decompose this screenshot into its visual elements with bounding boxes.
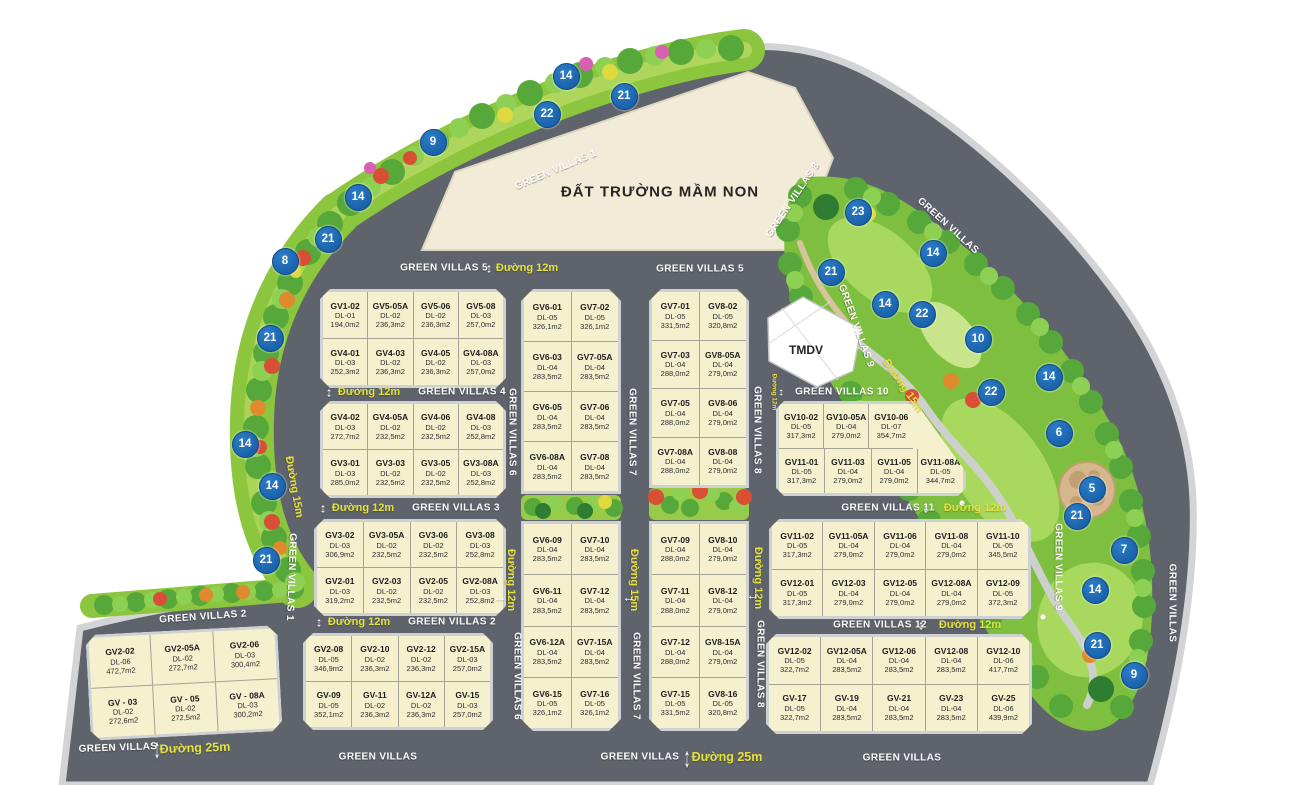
lot-GV12-01[interactable]: GV12-01DL-05317,3m2 (772, 570, 823, 617)
lot-text: GV7-15A (577, 637, 612, 647)
lot-GV3-05A[interactable]: GV3-05ADL-02232,5m2 (364, 522, 411, 567)
lot-GV7-12[interactable]: GV7-12DL-04283,5m2 (572, 575, 619, 625)
tmdv-label[interactable]: TMDV (789, 343, 823, 357)
lot-text: GV-17 (783, 693, 807, 703)
lot-text: DL-03 (457, 701, 477, 710)
lot-text: 232,5m2 (419, 550, 448, 559)
lot-text: DL-04 (537, 545, 557, 554)
lot-row: GV6-09DL-04283,5m2GV7-10DL-04283,5m2 (524, 524, 618, 575)
lot-text: DL-02 (423, 541, 443, 550)
lot-GV11-02[interactable]: GV11-02DL-05317,3m2 (772, 522, 823, 569)
lot-text: 257,0m2 (453, 664, 482, 673)
amenity-marker-14[interactable]: 14 (232, 431, 259, 458)
lot-text: 300,2m2 (233, 709, 263, 720)
lot-GV11-08[interactable]: GV11-08DL-04279,0m2 (926, 522, 977, 569)
lot-text: 272,5m2 (171, 713, 201, 724)
lot-text: 236,3m2 (360, 664, 389, 673)
lot-text: GV2-15A (450, 644, 485, 654)
lot-row: GV7-11DL-04288,0m2GV8-12DL-04279,0m2 (652, 575, 746, 626)
lot-GV10-02[interactable]: GV10-02DL-05317,3m2 (779, 404, 824, 448)
road-width-arrow-icon: ↕ (486, 261, 493, 276)
lot-block-Ftop: GV6-01DL-05326,1m2GV7-02DL-05326,1m2GV6-… (521, 289, 621, 494)
lot-GV-08A[interactable]: GV - 08ADL-03300,2m2 (216, 679, 280, 732)
lot-text: GV11-08A (921, 457, 961, 467)
lot-text: GV-11 (363, 690, 387, 700)
lot-text: DL-04 (941, 541, 961, 550)
lot-text: 279,0m2 (834, 598, 863, 607)
lot-GV11-01[interactable]: GV11-01DL-05317,3m2 (779, 449, 825, 493)
lot-row: GV6-15DL-05326,1m2GV7-16DL-05326,1m2 (524, 678, 618, 728)
lot-block-Fbot: GV6-09DL-04283,5m2GV7-10DL-04283,5m2GV6-… (521, 521, 621, 731)
lot-GV-03[interactable]: GV - 03DL-02272,6m2 (91, 685, 156, 738)
lot-text: 257,0m2 (453, 710, 482, 719)
lot-row: GV11-02DL-05317,3m2GV11-05ADL-04279,0m2G… (772, 522, 1028, 570)
lot-GV11-05[interactable]: GV11-05DL-04279,0m2 (872, 449, 918, 493)
road-name-label: GREEN VILLAS 9 (1053, 523, 1064, 611)
lot-row: GV12-02DL-05322,7m2GV12-05ADL-04283,5m2G… (769, 637, 1029, 685)
lot-GV3-03[interactable]: GV3-03DL-02232,5m2 (368, 450, 413, 495)
lot-text: GV5-05A (373, 301, 408, 311)
amenity-marker-21[interactable]: 21 (315, 226, 342, 253)
lot-text: GV11-06 (883, 531, 917, 541)
lot-GV8-05A[interactable]: GV8-05ADL-04279,0m2 (700, 341, 747, 389)
lot-GV-09[interactable]: GV-09DL-05352,1m2 (306, 682, 352, 727)
lot-GV6-15[interactable]: GV6-15DL-05326,1m2 (524, 678, 572, 728)
lot-text: GV12-03 (832, 578, 866, 588)
lot-text: DL-04 (665, 360, 685, 369)
lot-GV7-11[interactable]: GV7-11DL-04288,0m2 (652, 575, 700, 625)
lot-GV6-01[interactable]: GV6-01DL-05326,1m2 (524, 292, 572, 341)
lot-text: DL-03 (330, 541, 350, 550)
lot-text: GV8-15A (705, 637, 740, 647)
lot-GV12-10[interactable]: GV12-10DL-06417,7m2 (978, 637, 1029, 684)
lot-text: DL-02 (380, 311, 400, 320)
lot-text: GV2-12 (406, 644, 435, 654)
lot-GV6-03[interactable]: GV6-03DL-04283,5m2 (524, 342, 572, 391)
lot-text: GV3-05 (421, 458, 450, 468)
lot-GV12-05[interactable]: GV12-05DL-04279,0m2 (875, 570, 926, 617)
lot-GV11-10[interactable]: GV11-10DL-05345,5m2 (978, 522, 1028, 569)
road-width-arrow-icon: ↕ (316, 615, 323, 630)
lot-GV7-15[interactable]: GV7-15DL-05331,5m2 (652, 678, 700, 728)
road-width-label: Đường 12m (505, 549, 517, 611)
lot-GV11-03[interactable]: GV11-03DL-04279,0m2 (825, 449, 871, 493)
road-width-label: Đường 12m (332, 502, 394, 514)
lot-text: 320,8m2 (708, 708, 737, 717)
lot-GV2-05[interactable]: GV2-05DL-02232,5m2 (411, 568, 458, 613)
lot-text: GV7-09 (661, 535, 690, 545)
lot-text: 279,0m2 (708, 369, 737, 378)
lot-text: DL-05 (787, 589, 807, 598)
lot-text: 354,7m2 (877, 431, 906, 440)
lot-text: 326,1m2 (580, 322, 609, 331)
lot-GV2-15A[interactable]: GV2-15ADL-03257,0m2 (445, 636, 490, 681)
lot-GV7-02[interactable]: GV7-02DL-05326,1m2 (572, 292, 619, 341)
lot-text: DL-04 (941, 704, 961, 713)
lot-text: DL-04 (836, 422, 856, 431)
lot-text: DL-02 (425, 423, 445, 432)
lot-GV7-08[interactable]: GV7-08DL-04283,5m2 (572, 442, 619, 491)
lot-row: GV7-09DL-04288,0m2GV8-10DL-04279,0m2 (652, 524, 746, 575)
lot-text: GV12-05 (883, 578, 917, 588)
lot-GV-05[interactable]: GV - 05DL-02272,5m2 (153, 682, 218, 735)
lot-GV7-05[interactable]: GV7-05DL-04288,0m2 (652, 389, 700, 437)
road-width-arrow-icon: ↕ (778, 386, 785, 398)
lot-text: GV-21 (887, 693, 911, 703)
lot-text: GV12-10 (986, 646, 1020, 656)
lot-GV7-09[interactable]: GV7-09DL-04288,0m2 (652, 524, 700, 574)
lot-GV7-08A[interactable]: GV7-08ADL-04288,0m2 (652, 438, 700, 486)
amenity-marker-10[interactable]: 10 (965, 326, 992, 353)
lot-GV12-05A[interactable]: GV12-05ADL-04283,5m2 (821, 637, 873, 684)
amenity-marker-14[interactable]: 14 (920, 240, 947, 267)
lot-text: 288,0m2 (661, 657, 690, 666)
lot-text: DL-04 (837, 704, 857, 713)
road-width-label: Đường 25m (159, 740, 230, 756)
road-name-label: GREEN VILLAS (1167, 564, 1178, 643)
lot-text: 283,5m2 (580, 554, 609, 563)
road-width-label: Đường 12m (338, 386, 400, 398)
lot-text: 288,0m2 (661, 606, 690, 615)
lot-text: 232,5m2 (421, 432, 450, 441)
lot-GV4-08[interactable]: GV4-08DL-03252,8m2 (459, 404, 503, 449)
amenity-marker-22[interactable]: 22 (978, 379, 1005, 406)
lot-text: DL-04 (585, 363, 605, 372)
lot-text: DL-05 (993, 541, 1013, 550)
lot-GV1-02[interactable]: GV1-02DL-01194,0m2 (323, 292, 368, 338)
amenity-marker-14[interactable]: 14 (345, 184, 372, 211)
lot-text: 236,3m2 (376, 367, 405, 376)
lot-text: GV6-01 (533, 302, 562, 312)
lot-GV11-05A[interactable]: GV11-05ADL-04279,0m2 (823, 522, 874, 569)
lot-GV-25[interactable]: GV-25DL-06439,9m2 (978, 685, 1029, 732)
road-width-arrow-icon: ↕ (320, 501, 327, 516)
lot-GV8-08[interactable]: GV8-08DL-04279,0m2 (700, 438, 747, 486)
lot-text: GV3-03 (376, 458, 405, 468)
lot-text: GV10-05A (826, 412, 866, 422)
amenity-marker-14[interactable]: 14 (1082, 577, 1109, 604)
lot-text: DL-06 (993, 656, 1013, 665)
lot-GV4-03[interactable]: GV4-03DL-02236,3m2 (368, 339, 413, 385)
lot-text: DL-04 (585, 463, 605, 472)
lot-text: GV7-12 (661, 637, 690, 647)
amenity-marker-21[interactable]: 21 (1064, 503, 1091, 530)
lot-GV5-05A[interactable]: GV5-05ADL-02236,3m2 (368, 292, 413, 338)
lot-GV2-08[interactable]: GV2-08DL-05346,9m2 (306, 636, 352, 681)
lot-GV12-02[interactable]: GV12-02DL-05322,7m2 (769, 637, 821, 684)
lot-text: 283,5m2 (884, 713, 913, 722)
amenity-marker-21[interactable]: 21 (611, 83, 638, 110)
lot-text: GV7-08A (658, 447, 693, 457)
lot-text: GV11-01 (785, 457, 819, 467)
amenity-marker-7[interactable]: 7 (1111, 537, 1138, 564)
lot-text: DL-04 (884, 467, 904, 476)
lot-GV2-02[interactable]: GV2-02DL-06472,7m2 (89, 635, 154, 688)
lot-GV4-01[interactable]: GV4-01DL-03252,3m2 (323, 339, 368, 385)
lot-GV4-02[interactable]: GV4-02DL-03272,7m2 (323, 404, 368, 449)
lot-text: DL-05 (585, 313, 605, 322)
lot-row: GV4-01DL-03252,3m2GV4-03DL-02236,3m2GV4-… (323, 339, 503, 385)
lot-text: DL-04 (713, 596, 733, 605)
lot-text: 320,8m2 (708, 321, 737, 330)
lot-row: GV1-02DL-01194,0m2GV5-05ADL-02236,3m2GV5… (323, 292, 503, 339)
lot-text: DL-05 (791, 467, 811, 476)
lot-text: 288,0m2 (661, 418, 690, 427)
lot-text: 417,7m2 (989, 665, 1018, 674)
lot-GV12-06[interactable]: GV12-06DL-04283,5m2 (873, 637, 925, 684)
lot-GV7-10[interactable]: GV7-10DL-04283,5m2 (572, 524, 619, 574)
lot-row: GV7-15DL-05331,5m2GV8-16DL-05320,8m2 (652, 678, 746, 728)
lot-GV3-01[interactable]: GV3-01DL-03285,0m2 (323, 450, 368, 495)
lot-GV11-06[interactable]: GV11-06DL-04279,0m2 (875, 522, 926, 569)
lot-GV-17[interactable]: GV-17DL-05322,7m2 (769, 685, 821, 732)
lot-GV6-05[interactable]: GV6-05DL-04283,5m2 (524, 392, 572, 441)
lot-text: DL-04 (537, 463, 557, 472)
lot-text: DL-07 (881, 422, 901, 431)
lot-text: GV3-08 (465, 530, 494, 540)
lot-GV7-15A[interactable]: GV7-15ADL-04283,5m2 (572, 627, 619, 677)
lot-GV8-02[interactable]: GV8-02DL-05320,8m2 (700, 292, 747, 340)
lot-GV12-09[interactable]: GV12-09DL-05372,3m2 (978, 570, 1028, 617)
lot-text: DL-04 (941, 656, 961, 665)
road-width-arrow-icon: ↕ (326, 385, 333, 400)
lot-GV7-12[interactable]: GV7-12DL-04288,0m2 (652, 627, 700, 677)
lot-GV8-16[interactable]: GV8-16DL-05320,8m2 (700, 678, 747, 728)
lot-text: GV6-08A (530, 452, 565, 462)
lot-GV5-06[interactable]: GV5-06DL-02236,3m2 (414, 292, 459, 338)
lot-GV2-01[interactable]: GV2-01DL-03319,2m2 (317, 568, 364, 613)
lot-text: GV4-03 (376, 348, 405, 358)
amenity-marker-9[interactable]: 9 (420, 129, 447, 156)
lot-GV8-15A[interactable]: GV8-15ADL-04279,0m2 (700, 627, 747, 677)
lot-row: GV3-02DL-03306,9m2GV3-05ADL-02232,5m2GV3… (317, 522, 503, 568)
lot-GV3-02[interactable]: GV3-02DL-03306,9m2 (317, 522, 364, 567)
lot-text: DL-04 (890, 541, 910, 550)
lot-text: GV12-01 (780, 578, 814, 588)
lot-GV12-08A[interactable]: GV12-08ADL-04279,0m2 (926, 570, 977, 617)
lot-GV3-08A[interactable]: GV3-08ADL-03252,8m2 (459, 450, 503, 495)
lot-GV-19[interactable]: GV-19DL-04283,5m2 (821, 685, 873, 732)
lot-text: DL-04 (585, 413, 605, 422)
lot-GV3-06[interactable]: GV3-06DL-02232,5m2 (411, 522, 458, 567)
lot-GV5-08[interactable]: GV5-08DL-03257,0m2 (459, 292, 503, 338)
lot-text: GV-15 (455, 690, 479, 700)
lot-text: 236,3m2 (360, 710, 389, 719)
lot-text: 288,0m2 (661, 466, 690, 475)
amenity-marker-21[interactable]: 21 (257, 325, 284, 352)
lot-text: GV7-06 (580, 402, 609, 412)
lot-GV-11[interactable]: GV-11DL-02236,3m2 (352, 682, 398, 727)
lot-text: GV4-01 (330, 348, 359, 358)
lot-text: 232,5m2 (372, 550, 401, 559)
lot-row: GV7-01DL-05331,5m2GV8-02DL-05320,8m2 (652, 292, 746, 341)
lot-text: 236,3m2 (421, 320, 450, 329)
amenity-marker-22[interactable]: 22 (534, 101, 561, 128)
lot-text: 283,5m2 (580, 606, 609, 615)
amenity-marker-21[interactable]: 21 (253, 547, 280, 574)
lot-text: 300,4m2 (231, 659, 261, 670)
lot-text: DL-01 (335, 311, 355, 320)
lot-text: 283,5m2 (832, 713, 861, 722)
lot-GV7-16[interactable]: GV7-16DL-05326,1m2 (572, 678, 619, 728)
lot-text: DL-05 (784, 656, 804, 665)
lot-text: GV7-10 (580, 535, 609, 545)
lot-GV8-10[interactable]: GV8-10DL-04279,0m2 (700, 524, 747, 574)
lot-block-Gtop: GV7-01DL-05331,5m2GV8-02DL-05320,8m2GV7-… (649, 289, 749, 488)
lot-GV12-03[interactable]: GV12-03DL-04279,0m2 (823, 570, 874, 617)
lot-GV2-03[interactable]: GV2-03DL-02232,5m2 (364, 568, 411, 613)
lot-text: DL-02 (380, 423, 400, 432)
lot-text: DL-04 (537, 596, 557, 605)
lot-text: DL-05 (585, 699, 605, 708)
lot-text: 322,7m2 (780, 665, 809, 674)
lot-GV7-06[interactable]: GV7-06DL-04283,5m2 (572, 392, 619, 441)
lot-row: GV2-08DL-05346,9m2GV2-10DL-02236,3m2GV2-… (306, 636, 490, 682)
lot-GV4-08A[interactable]: GV4-08ADL-03257,0m2 (459, 339, 503, 385)
lot-row: GV7-08ADL-04288,0m2GV8-08DL-04279,0m2 (652, 438, 746, 486)
lot-GV2-12[interactable]: GV2-12DL-02236,3m2 (399, 636, 445, 681)
lot-text: GV6-11 (533, 586, 562, 596)
lot-text: 283,5m2 (580, 422, 609, 431)
lot-block-E: GV2-02DL-06472,7m2GV2-05ADL-02272,7m2GV2… (85, 625, 282, 741)
lot-GV8-06[interactable]: GV8-06DL-04279,0m2 (700, 389, 747, 437)
amenity-marker-9[interactable]: 9 (1121, 662, 1148, 689)
lot-text: 283,5m2 (937, 665, 966, 674)
lot-GV-12A[interactable]: GV-12ADL-02236,3m2 (399, 682, 445, 727)
lot-text: 326,1m2 (533, 708, 562, 717)
lot-text: GV11-03 (831, 457, 865, 467)
lot-GV6-11[interactable]: GV6-11DL-04283,5m2 (524, 575, 572, 625)
lot-GV6-08A[interactable]: GV6-08ADL-04283,5m2 (524, 442, 572, 491)
amenity-marker-8[interactable]: 8 (272, 248, 299, 275)
lot-GV8-12[interactable]: GV8-12DL-04279,0m2 (700, 575, 747, 625)
lot-text: 283,5m2 (884, 665, 913, 674)
lot-GV10-05A[interactable]: GV10-05ADL-04279,0m2 (824, 404, 869, 448)
lot-text: DL-03 (471, 358, 491, 367)
lot-text: DL-05 (930, 467, 950, 476)
lot-text: 283,5m2 (937, 713, 966, 722)
lot-GV4-06[interactable]: GV4-06DL-02232,5m2 (414, 404, 459, 449)
road-width-label: Đường 25m (692, 750, 763, 764)
lot-text: 283,5m2 (533, 606, 562, 615)
lot-text: DL-04 (585, 648, 605, 657)
amenity-marker-21[interactable]: 21 (1084, 632, 1111, 659)
lot-text: GV7-15 (661, 689, 690, 699)
lot-GV3-08[interactable]: GV3-08DL-03252,8m2 (457, 522, 503, 567)
lot-text: 257,0m2 (466, 320, 495, 329)
lot-text: GV6-05 (533, 402, 562, 412)
lot-text: GV-19 (835, 693, 859, 703)
road-name-label: GREEN VILLAS 4 (418, 387, 506, 398)
lot-GV2-10[interactable]: GV2-10DL-02236,3m2 (352, 636, 398, 681)
amenity-marker-21[interactable]: 21 (818, 259, 845, 286)
lot-text: 279,0m2 (833, 476, 862, 485)
lot-text: 317,3m2 (783, 598, 812, 607)
lot-text: GV4-08 (466, 412, 495, 422)
lot-text: DL-05 (787, 541, 807, 550)
lot-text: GV6-15 (533, 689, 562, 699)
lot-text: 232,5m2 (376, 478, 405, 487)
lot-GV-15[interactable]: GV-15DL-03257,0m2 (445, 682, 490, 727)
lot-text: 279,0m2 (832, 431, 861, 440)
amenity-marker-23[interactable]: 23 (845, 199, 872, 226)
lot-text: DL-02 (425, 358, 445, 367)
lot-text: DL-06 (993, 704, 1013, 713)
amenity-marker-14[interactable]: 14 (259, 473, 286, 500)
lot-text: DL-04 (713, 545, 733, 554)
lot-text: DL-05 (791, 422, 811, 431)
road-name-label: GREEN VILLAS 3 (412, 503, 500, 514)
road-name-label: GREEN VILLAS 5 (400, 263, 488, 274)
lot-text: DL-04 (889, 704, 909, 713)
lot-text: GV11-08 (935, 531, 969, 541)
lot-GV12-08[interactable]: GV12-08DL-04283,5m2 (926, 637, 978, 684)
amenity-marker-14[interactable]: 14 (1036, 364, 1063, 391)
road-width-arrow-icon: ↕ (684, 741, 691, 774)
lot-GV4-05[interactable]: GV4-05DL-02236,3m2 (414, 339, 459, 385)
lot-text: GV3-08A (463, 458, 498, 468)
lot-text: 372,3m2 (988, 598, 1017, 607)
lot-text: 472,7m2 (106, 665, 136, 676)
road-name-label: GREEN VILLAS 2 (408, 617, 496, 628)
lot-row: GV6-01DL-05326,1m2GV7-02DL-05326,1m2 (524, 292, 618, 342)
lot-text: GV7-05 (661, 398, 690, 408)
lot-text: DL-03 (335, 358, 355, 367)
lot-GV-21[interactable]: GV-21DL-04283,5m2 (873, 685, 925, 732)
lot-text: DL-03 (471, 311, 491, 320)
site-plan: ĐẤT TRƯỜNG MẦM NON TMDV GV1-02DL-01194,0… (0, 0, 1290, 785)
lot-text: DL-02 (425, 311, 445, 320)
amenity-marker-14[interactable]: 14 (872, 291, 899, 318)
lot-GV2-06[interactable]: GV2-06DL-03300,4m2 (213, 628, 277, 681)
amenity-marker-6[interactable]: 6 (1046, 420, 1073, 447)
lot-text: DL-05 (665, 312, 685, 321)
road-width-arrow-icon: ↕ (918, 618, 925, 633)
lot-row: GV7-12DL-04288,0m2GV8-15ADL-04279,0m2 (652, 627, 746, 678)
lot-text: 236,3m2 (407, 710, 436, 719)
amenity-marker-14[interactable]: 14 (553, 63, 580, 90)
lot-GV-23[interactable]: GV-23DL-04283,5m2 (926, 685, 978, 732)
lot-GV7-05A[interactable]: GV7-05ADL-04283,5m2 (572, 342, 619, 391)
amenity-marker-22[interactable]: 22 (909, 301, 936, 328)
lot-row: GV12-01DL-05317,3m2GV12-03DL-04279,0m2GV… (772, 570, 1028, 617)
lot-block-A: GV1-02DL-01194,0m2GV5-05ADL-02236,3m2GV5… (320, 289, 506, 388)
lot-block-C: GV3-02DL-03306,9m2GV3-05ADL-02232,5m2GV3… (314, 519, 506, 616)
lot-GV10-06[interactable]: GV10-06DL-07354,7m2 (869, 404, 913, 448)
lot-row: GV - 03DL-02272,6m2GV - 05DL-02272,5m2GV… (91, 679, 279, 738)
lot-GV6-09[interactable]: GV6-09DL-04283,5m2 (524, 524, 572, 574)
amenity-marker-5[interactable]: 5 (1079, 476, 1106, 503)
lot-GV7-03[interactable]: GV7-03DL-04288,0m2 (652, 341, 700, 389)
lot-text: GV12-09 (986, 578, 1020, 588)
lot-text: DL-04 (713, 457, 733, 466)
lot-GV3-05[interactable]: GV3-05DL-02232,5m2 (414, 450, 459, 495)
lot-text: 283,5m2 (580, 472, 609, 481)
lot-GV4-05A[interactable]: GV4-05ADL-02232,5m2 (368, 404, 413, 449)
lot-text: 279,0m2 (885, 550, 914, 559)
lot-text: 331,5m2 (661, 321, 690, 330)
lot-text: GV7-16 (580, 689, 609, 699)
lot-text: DL-02 (380, 469, 400, 478)
lot-text: 306,9m2 (325, 550, 354, 559)
lot-text: DL-02 (423, 587, 443, 596)
road-width-label: Đường 12m (771, 374, 778, 411)
lot-GV2-05A[interactable]: GV2-05ADL-02272,7m2 (151, 631, 216, 684)
lot-GV6-12A[interactable]: GV6-12ADL-04283,5m2 (524, 627, 572, 677)
lot-GV7-01[interactable]: GV7-01DL-05331,5m2 (652, 292, 700, 340)
lot-text: GV3-01 (330, 458, 359, 468)
lot-text: 331,5m2 (661, 708, 690, 717)
